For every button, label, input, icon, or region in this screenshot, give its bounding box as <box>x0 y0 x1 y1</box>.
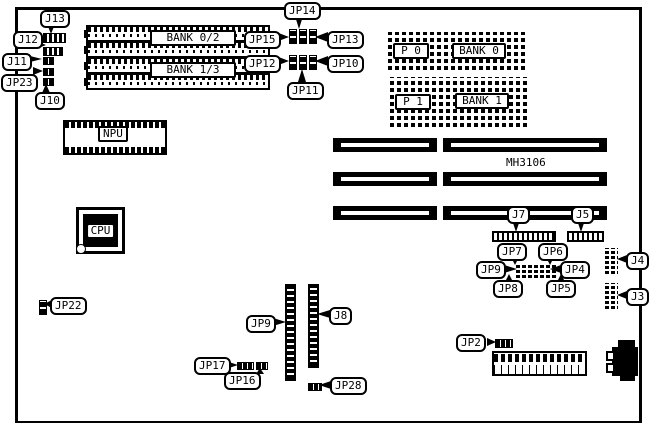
j5-header <box>567 231 604 242</box>
p1-label: P 1 <box>395 94 431 110</box>
callout-jp9-block: JP9 <box>476 261 506 279</box>
callout-j11: J11 <box>2 53 32 71</box>
callout-jp8: JP8 <box>493 280 523 298</box>
bank02-label: BANK 0/2 <box>150 30 236 46</box>
j7-header <box>492 231 556 242</box>
callout-jp14: JP14 <box>284 2 321 20</box>
isa-slot-2-short <box>333 172 437 186</box>
jumper-pins <box>299 29 307 44</box>
callout-jp9-strip: JP9 <box>246 315 276 333</box>
j12-header <box>43 47 63 56</box>
callout-jp23: JP23 <box>1 74 38 92</box>
keyboard-connector-top <box>618 340 635 348</box>
cpu-socket: CPU <box>76 207 125 254</box>
keyboard-connector-pin <box>606 351 615 361</box>
jp9-pin-strip <box>285 284 296 381</box>
keyboard-connector-pin <box>606 363 615 373</box>
power-connector <box>492 351 587 376</box>
jumper-pins <box>289 29 297 44</box>
callout-jp6: JP6 <box>538 243 568 261</box>
callout-tail-jp2 <box>487 338 496 346</box>
callout-jp5: JP5 <box>546 280 576 298</box>
callout-j4: J4 <box>626 252 649 270</box>
jumper-pins <box>289 55 297 70</box>
callout-tail-jp11 <box>298 69 306 82</box>
callout-j13: J13 <box>40 10 70 28</box>
jp23-jumper <box>43 68 54 76</box>
callout-jp12: JP12 <box>244 55 281 73</box>
callout-j10: J10 <box>35 92 65 110</box>
isa-slot-3-short <box>333 206 437 220</box>
j13-header <box>43 33 66 43</box>
callout-jp28: JP28 <box>330 377 367 395</box>
callout-j12: J12 <box>13 31 43 49</box>
model-number-text: MH3106 <box>506 157 546 169</box>
callout-j5: J5 <box>571 206 594 224</box>
callout-j7: J7 <box>507 206 530 224</box>
bank1-label: BANK 1 <box>455 93 509 109</box>
j8-pin-strip <box>308 284 319 368</box>
motherboard-diagram: BANK 0/2 BANK 1/3 P 0 BANK 0 P 1 BANK 1 … <box>0 0 651 423</box>
callout-jp2: JP2 <box>456 334 486 352</box>
npu-label: NPU <box>98 126 128 142</box>
callout-tail-jp9-block <box>504 265 517 273</box>
bank13-label: BANK 1/3 <box>150 62 236 78</box>
cpu-label: CPU <box>87 224 115 238</box>
isa-slot-2-long <box>443 172 607 186</box>
callout-jp15: JP15 <box>244 31 281 49</box>
callout-j3: J3 <box>626 288 649 306</box>
callout-jp13: JP13 <box>327 31 364 49</box>
callout-j8: J8 <box>329 307 352 325</box>
isa-slot-1-long <box>443 138 607 152</box>
jumper-pins <box>299 55 307 70</box>
keyboard-connector-bottom <box>620 375 635 381</box>
isa-slot-1-short <box>333 138 437 152</box>
jp17-jumper <box>237 362 254 370</box>
callout-jp22: JP22 <box>50 297 87 315</box>
keyboard-connector <box>612 347 638 376</box>
cpu-pin1-notch <box>76 244 86 254</box>
callout-jp7: JP7 <box>497 243 527 261</box>
callout-jp16: JP16 <box>224 372 261 390</box>
callout-jp10: JP10 <box>327 55 364 73</box>
j11-jumper <box>43 57 54 65</box>
callout-jp4: JP4 <box>560 261 590 279</box>
callout-jp17: JP17 <box>194 357 231 375</box>
jp2-jumper <box>495 339 513 348</box>
p0-label: P 0 <box>393 43 429 59</box>
callout-jp11: JP11 <box>287 82 324 100</box>
bank0-label: BANK 0 <box>452 43 506 59</box>
